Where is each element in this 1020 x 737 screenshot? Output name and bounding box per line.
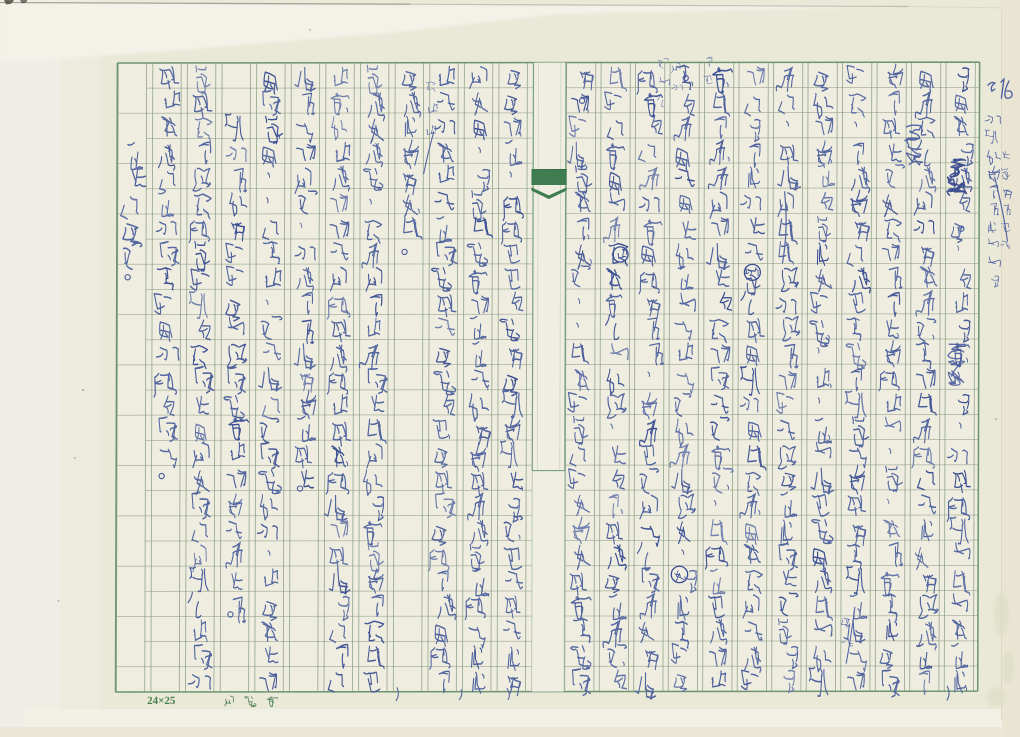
svg-text:24×25: 24×25 <box>147 695 176 707</box>
